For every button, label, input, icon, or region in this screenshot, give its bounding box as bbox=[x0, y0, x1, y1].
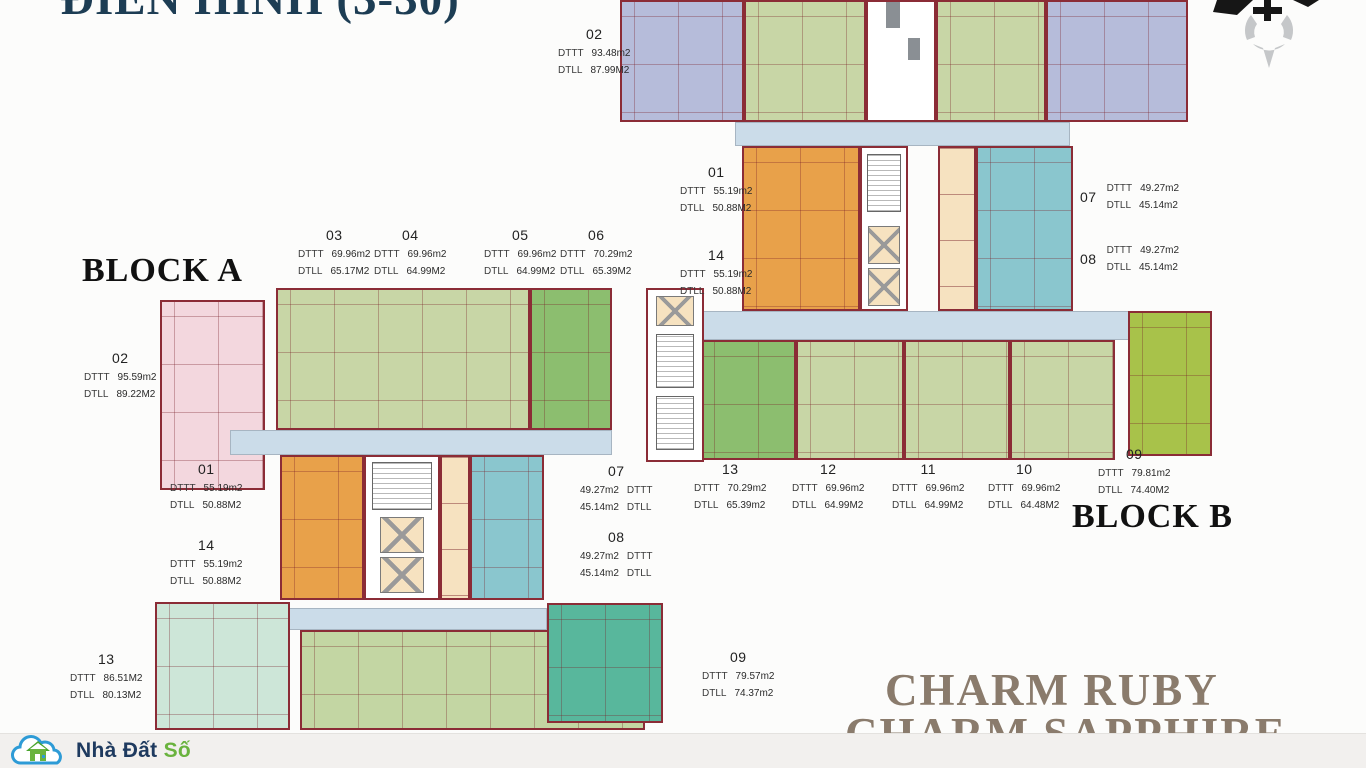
dttt-label: DTTT bbox=[70, 670, 96, 687]
unit-label-a08: 08 DTTT49.27m2 DTLL45.14m2 bbox=[580, 529, 652, 582]
logo-text-primary: Nhà Đất bbox=[76, 739, 157, 762]
dttt-value: 86.51M2 bbox=[104, 670, 143, 687]
dttt-label: DTTT bbox=[298, 246, 324, 263]
dttt-value: 55.19m2 bbox=[204, 480, 243, 497]
unit-number: 08 bbox=[1080, 251, 1097, 267]
unit-number: 04 bbox=[374, 227, 446, 243]
dtll-value: 65.39M2 bbox=[592, 263, 631, 280]
unit-number: 07 bbox=[1080, 189, 1097, 205]
dtll-label: DTLL bbox=[170, 497, 194, 514]
dtll-label: DTLL bbox=[702, 685, 726, 702]
unit-b12-plan bbox=[796, 340, 904, 460]
dttt-value: 69.96m2 bbox=[518, 246, 557, 263]
compass-icon bbox=[1205, 0, 1330, 72]
dttt-value: 69.96m2 bbox=[1022, 480, 1061, 497]
corridor-b-upper bbox=[735, 122, 1070, 146]
dtll-value: 74.37m2 bbox=[734, 685, 773, 702]
unit-label-b02: 02 DTTT93.48m2 DTLL87.99M2 bbox=[558, 26, 630, 79]
unit-label-b01: 01 DTTT55.19m2 DTLL50.88M2 bbox=[680, 164, 752, 217]
dttt-value: 69.96m2 bbox=[826, 480, 865, 497]
dtll-label: DTLL bbox=[558, 62, 582, 79]
dtll-value: 65.39m2 bbox=[726, 497, 765, 514]
dtll-value: 80.13M2 bbox=[102, 687, 141, 704]
unit-label-b09: 09 DTTT79.81m2 DTLL74.40M2 bbox=[1098, 446, 1170, 499]
dttt-label: DTTT bbox=[374, 246, 400, 263]
dtll-value: 64.99M2 bbox=[406, 263, 445, 280]
dttt-label: DTTT bbox=[680, 183, 706, 200]
unit-b05-plan bbox=[936, 0, 1046, 122]
dttt-value: 70.29m2 bbox=[728, 480, 767, 497]
dttt-label: DTTT bbox=[1107, 180, 1133, 197]
dtll-label: DTLL bbox=[680, 283, 704, 300]
dttt-value: 69.96m2 bbox=[408, 246, 447, 263]
dtll-label: DTLL bbox=[988, 497, 1012, 514]
unit-b03-plan bbox=[620, 0, 744, 122]
floorplan-page: ĐIỂN HÌNH (3-30) bbox=[0, 0, 1366, 768]
dtll-value: 89.22M2 bbox=[116, 386, 155, 403]
footer-bar bbox=[0, 733, 1366, 768]
dtll-label: DTLL bbox=[892, 497, 916, 514]
dttt-label: DTTT bbox=[170, 480, 196, 497]
dtll-value: 64.48M2 bbox=[1020, 497, 1059, 514]
dtll-value: 45.14m2 bbox=[1139, 259, 1178, 276]
unit-number: 09 bbox=[1098, 446, 1170, 462]
unit-number: 07 bbox=[580, 463, 652, 479]
dtll-value: 50.88M2 bbox=[712, 283, 751, 300]
unit-label-a05: 05 DTTT69.96m2 DTLL64.99M2 bbox=[484, 227, 556, 280]
unit-label-a13: 13 DTTT86.51M2 DTLL80.13M2 bbox=[70, 651, 142, 704]
dtll-value: 87.99M2 bbox=[590, 62, 629, 79]
unit-number: 01 bbox=[680, 164, 752, 180]
unit-label-a07: 07 DTTT49.27m2 DTLL45.14m2 bbox=[580, 463, 652, 516]
dttt-label: DTTT bbox=[627, 482, 653, 499]
unit-label-b12: 12 DTTT69.96m2 DTLL64.99M2 bbox=[792, 461, 864, 514]
dttt-label: DTTT bbox=[702, 668, 728, 685]
dtll-label: DTLL bbox=[84, 386, 108, 403]
dttt-label: DTTT bbox=[560, 246, 586, 263]
unit-b13-plan bbox=[700, 340, 796, 460]
dtll-label: DTLL bbox=[170, 573, 194, 590]
unit-b07-b08-plan bbox=[976, 146, 1073, 311]
unit-label-a03: 03 DTTT69.96m2 DTLL65.17M2 bbox=[298, 227, 370, 280]
unit-number: 10 bbox=[988, 461, 1060, 477]
corridor-b-lower bbox=[700, 311, 1130, 340]
unit-a01-a14-plan bbox=[280, 455, 364, 600]
dttt-value: 69.96m2 bbox=[926, 480, 965, 497]
site-logo: Nhà Đất Số bbox=[8, 734, 191, 768]
dttt-label: DTTT bbox=[694, 480, 720, 497]
unit-number: 11 bbox=[892, 461, 964, 477]
dttt-value: 95.59m2 bbox=[118, 369, 157, 386]
logo-text: Nhà Đất Số bbox=[76, 739, 191, 763]
dttt-value: 79.81m2 bbox=[1132, 465, 1171, 482]
unit-number: 09 bbox=[702, 649, 774, 665]
unit-a06-plan bbox=[530, 288, 612, 430]
dttt-value: 49.27m2 bbox=[580, 482, 619, 499]
dttt-label: DTTT bbox=[1107, 242, 1133, 259]
unit-label-a04: 04 DTTT69.96m2 DTLL64.99M2 bbox=[374, 227, 446, 280]
unit-number: 14 bbox=[680, 247, 752, 263]
dtll-label: DTLL bbox=[1107, 259, 1131, 276]
dttt-label: DTTT bbox=[627, 548, 653, 565]
dttt-value: 93.48m2 bbox=[592, 45, 631, 62]
dttt-value: 70.29m2 bbox=[594, 246, 633, 263]
unit-number: 02 bbox=[84, 350, 156, 366]
dttt-label: DTTT bbox=[792, 480, 818, 497]
dtll-value: 64.99M2 bbox=[924, 497, 963, 514]
dtll-label: DTLL bbox=[374, 263, 398, 280]
unit-b01-b14-plan bbox=[742, 146, 860, 311]
unit-a07-a08-plan bbox=[470, 455, 544, 600]
unit-label-b07: 07 DTTT49.27m2 DTLL45.14m2 bbox=[1080, 180, 1179, 214]
unit-a09-plan bbox=[547, 603, 663, 723]
dttt-label: DTTT bbox=[680, 266, 706, 283]
unit-number: 12 bbox=[792, 461, 864, 477]
unit-label-b10: 10 DTTT69.96m2 DTLL64.48M2 bbox=[988, 461, 1060, 514]
page-title: ĐIỂN HÌNH (3-30) bbox=[60, 0, 460, 26]
unit-b09-plan bbox=[1128, 311, 1212, 456]
dtll-label: DTLL bbox=[560, 263, 584, 280]
stair-elevator-core-b bbox=[860, 146, 908, 311]
unit-label-b14: 14 DTTT55.19m2 DTLL50.88M2 bbox=[680, 247, 752, 300]
dtll-value: 64.99M2 bbox=[824, 497, 863, 514]
dttt-value: 55.19m2 bbox=[714, 183, 753, 200]
unit-number: 14 bbox=[170, 537, 242, 553]
block-b-label: BLOCK B bbox=[1072, 498, 1233, 536]
dtll-value: 50.88M2 bbox=[202, 497, 241, 514]
unit-number: 13 bbox=[694, 461, 766, 477]
stair-tower bbox=[646, 288, 704, 462]
dtll-label: DTLL bbox=[627, 565, 651, 582]
dtll-value: 45.14m2 bbox=[580, 565, 619, 582]
unit-label-b13: 13 DTTT70.29m2 DTLL65.39m2 bbox=[694, 461, 766, 514]
unit-label-a14: 14 DTTT55.19m2 DTLL50.88M2 bbox=[170, 537, 242, 590]
dtll-label: DTLL bbox=[792, 497, 816, 514]
unit-label-b11: 11 DTTT69.96m2 DTLL64.99M2 bbox=[892, 461, 964, 514]
dtll-value: 64.99M2 bbox=[516, 263, 555, 280]
dtll-label: DTLL bbox=[694, 497, 718, 514]
dttt-value: 55.19m2 bbox=[204, 556, 243, 573]
corridor-a-upper bbox=[230, 430, 612, 455]
unit-number: 03 bbox=[298, 227, 370, 243]
dttt-label: DTTT bbox=[1098, 465, 1124, 482]
dttt-label: DTTT bbox=[170, 556, 196, 573]
dtll-label: DTLL bbox=[298, 263, 322, 280]
dtll-label: DTLL bbox=[1107, 197, 1131, 214]
dttt-value: 49.27m2 bbox=[580, 548, 619, 565]
dtll-label: DTLL bbox=[680, 200, 704, 217]
dtll-value: 74.40M2 bbox=[1130, 482, 1169, 499]
unit-a03-a05-plan bbox=[276, 288, 530, 430]
dtll-label: DTLL bbox=[1098, 482, 1122, 499]
unit-b11-plan bbox=[904, 340, 1010, 460]
unit-label-a01: 01 DTTT55.19m2 DTLL50.88M2 bbox=[170, 461, 242, 514]
unit-b06-plan bbox=[1046, 0, 1188, 122]
unit-label-b08: 08 DTTT49.27m2 DTLL45.14m2 bbox=[1080, 242, 1179, 276]
dtll-label: DTLL bbox=[627, 499, 651, 516]
dttt-label: DTTT bbox=[558, 45, 584, 62]
unit-label-a02: 02 DTTT95.59m2 DTLL89.22M2 bbox=[84, 350, 156, 403]
unit-label-a09: 09 DTTT79.57m2 DTLL74.37m2 bbox=[702, 649, 774, 702]
unit-number: 05 bbox=[484, 227, 556, 243]
dttt-value: 49.27m2 bbox=[1140, 242, 1179, 259]
dttt-label: DTTT bbox=[484, 246, 510, 263]
dtll-label: DTLL bbox=[70, 687, 94, 704]
dttt-label: DTTT bbox=[84, 369, 110, 386]
unit-label-a06: 06 DTTT70.29m2 DTLL65.39M2 bbox=[560, 227, 632, 280]
service-core bbox=[866, 0, 936, 122]
block-a-label: BLOCK A bbox=[82, 252, 243, 290]
cloud-house-icon bbox=[8, 734, 70, 768]
dtll-value: 50.88M2 bbox=[202, 573, 241, 590]
dttt-label: DTTT bbox=[988, 480, 1014, 497]
dttt-value: 69.96m2 bbox=[332, 246, 371, 263]
dtll-value: 45.14m2 bbox=[580, 499, 619, 516]
dtll-label: DTLL bbox=[484, 263, 508, 280]
dtll-value: 45.14m2 bbox=[1139, 197, 1178, 214]
logo-text-accent: Số bbox=[164, 739, 191, 762]
unit-b10-plan bbox=[1010, 340, 1115, 460]
dtll-value: 50.88M2 bbox=[712, 200, 751, 217]
unit-a13-plan bbox=[155, 602, 290, 730]
unit-number: 02 bbox=[558, 26, 630, 42]
dttt-label: DTTT bbox=[892, 480, 918, 497]
unit-number: 13 bbox=[70, 651, 142, 667]
unit-b04-plan bbox=[744, 0, 866, 122]
elevator-bank-b bbox=[938, 146, 976, 311]
unit-number: 08 bbox=[580, 529, 652, 545]
dttt-value: 55.19m2 bbox=[714, 266, 753, 283]
stair-elevator-core-a bbox=[364, 455, 440, 600]
dttt-value: 79.57m2 bbox=[736, 668, 775, 685]
unit-number: 06 bbox=[560, 227, 632, 243]
dtll-value: 65.17M2 bbox=[330, 263, 369, 280]
unit-number: 01 bbox=[170, 461, 242, 477]
elevator-bank-a bbox=[440, 455, 470, 600]
dttt-value: 49.27m2 bbox=[1140, 180, 1179, 197]
